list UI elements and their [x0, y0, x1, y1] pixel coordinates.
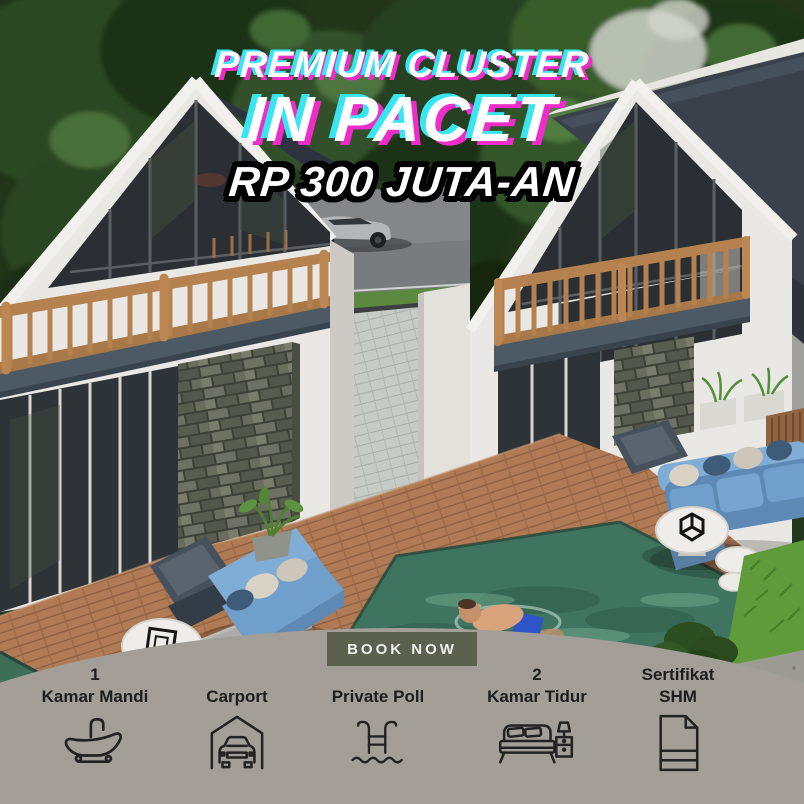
feature-count: Sertifikat	[603, 664, 753, 686]
feature-sertifikat-shm: Sertifikat SHM	[603, 664, 753, 779]
feature-label: Kamar Tidur	[462, 686, 612, 708]
certificate-icon	[653, 712, 703, 774]
property-ad-poster: PREMIUM CLUSTER IN PACET RP 300 JUTA-AN …	[0, 0, 804, 804]
pool-ladder-icon	[349, 712, 407, 770]
carport-icon	[206, 712, 268, 772]
feature-label: SHM	[603, 686, 753, 708]
bathtub-icon	[61, 712, 129, 770]
feature-label: Kamar Mandi	[20, 686, 170, 708]
feature-kamar-tidur: 2 Kamar Tidur	[462, 664, 612, 775]
feature-count: 2	[462, 664, 612, 686]
feature-label: Private Poll	[303, 686, 453, 708]
feature-carport: Carport	[162, 664, 312, 777]
book-now-button[interactable]: BOOK NOW	[327, 632, 477, 666]
feature-count	[303, 664, 453, 686]
feature-label: Carport	[162, 686, 312, 708]
bed-icon	[494, 712, 580, 770]
feature-count	[162, 664, 312, 686]
feature-kamar-mandi: 1 Kamar Mandi	[20, 664, 170, 775]
feature-private-pool: Private Poll	[303, 664, 453, 775]
